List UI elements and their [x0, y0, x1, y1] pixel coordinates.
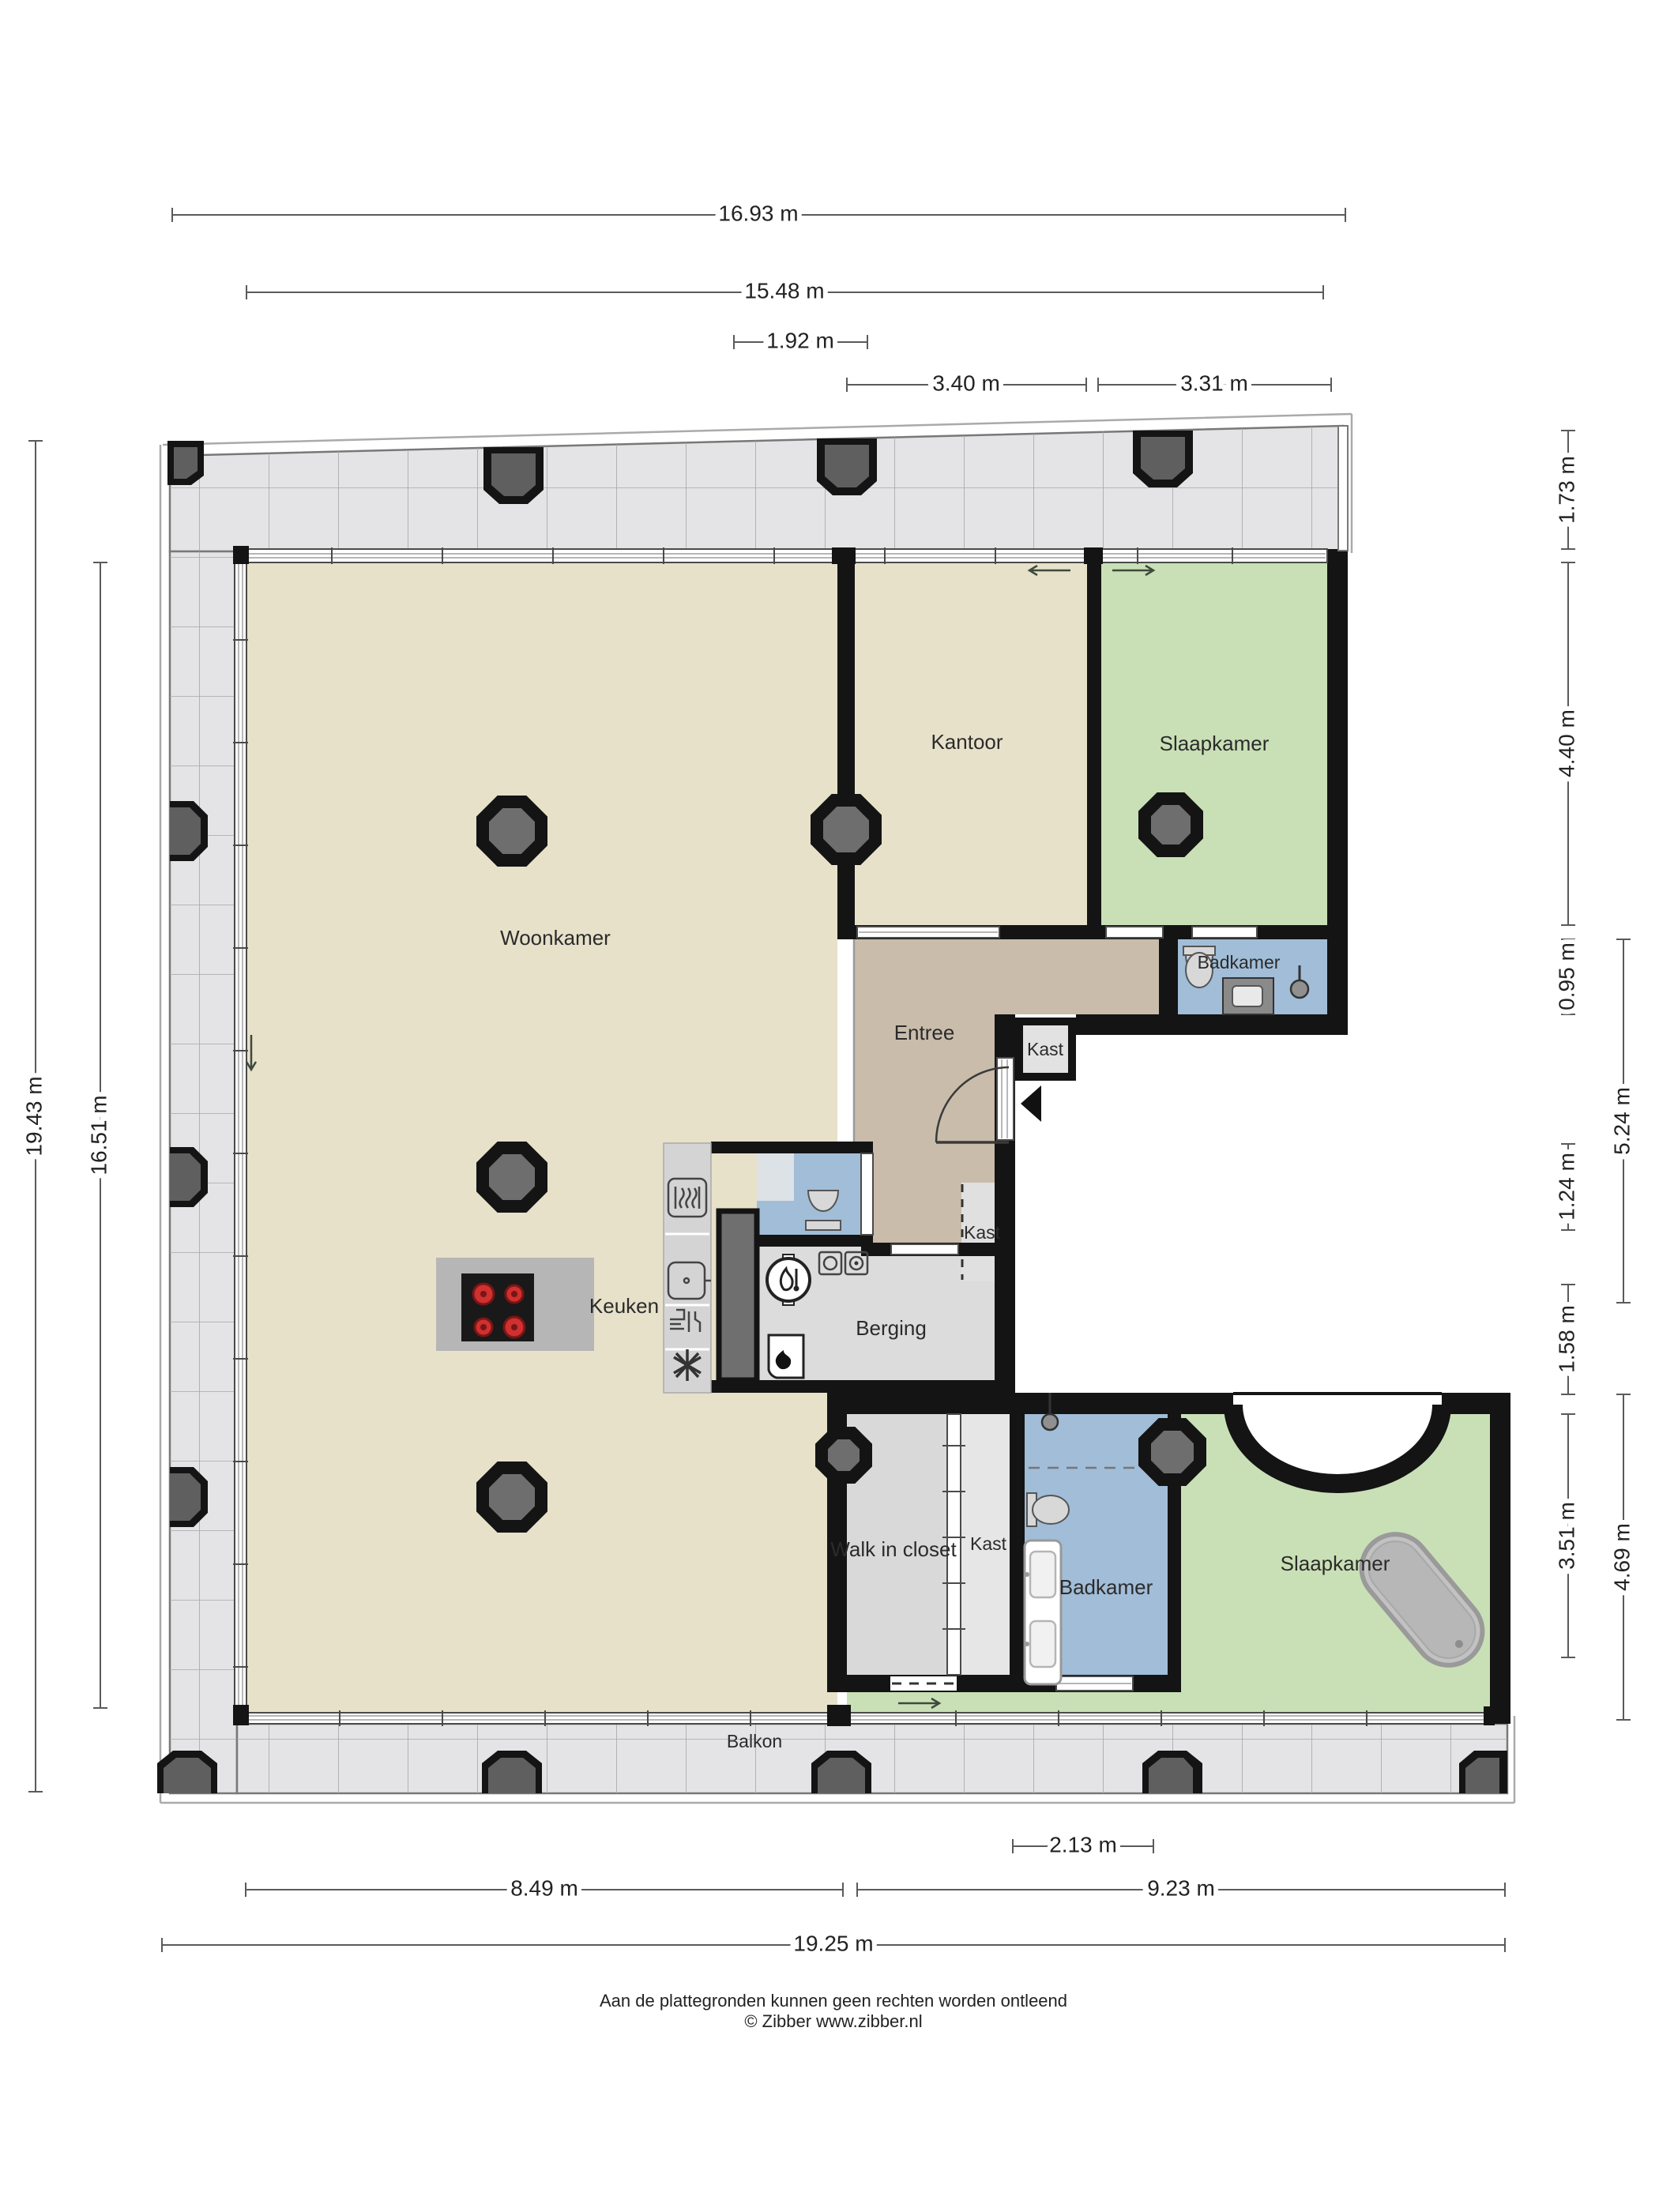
- dim-bottom-3: 19.25 m: [793, 1931, 873, 1955]
- dim-bottom-0: 2.13 m: [1049, 1832, 1117, 1856]
- window-band-top: [237, 549, 1327, 562]
- badkamer-top-window: [1192, 927, 1257, 938]
- toilet-bottom-icon: [1027, 1493, 1069, 1526]
- label-keuken: Keuken: [589, 1294, 659, 1318]
- toilet-window: [861, 1153, 873, 1235]
- wall-toilet-top: [711, 1142, 873, 1153]
- column-octagon: [817, 800, 875, 859]
- dim-right-7: 4.69 m: [1609, 1523, 1634, 1591]
- double-basin-icon: [1025, 1540, 1061, 1684]
- dim-left-1: 16.51 m: [86, 1095, 111, 1175]
- dim-right-1: 4.40 m: [1554, 709, 1578, 777]
- column-octagon: [483, 802, 541, 860]
- footer: Aan de plattegronden kunnen geen rechten…: [600, 1991, 1067, 2031]
- label-berging: Berging: [856, 1316, 927, 1340]
- label-kast-b: Kast: [964, 1222, 1001, 1243]
- berging-window: [891, 1244, 958, 1255]
- vanity-sink-icon: [1223, 978, 1273, 1014]
- label-balkon: Balkon: [727, 1731, 782, 1751]
- dim-left-0: 19.43 m: [21, 1076, 46, 1156]
- dim-right-2: 0.95 m: [1554, 942, 1578, 1010]
- wall-kantoor-slaapkamer: [1087, 562, 1101, 939]
- dim-right-5: 1.58 m: [1554, 1305, 1578, 1373]
- label-kantoor: Kantoor: [931, 730, 1003, 754]
- wall-bedroom-right: [1490, 1393, 1510, 1724]
- dim-top-0: 16.93 m: [718, 201, 798, 225]
- slaapkamer-top-door: [1106, 927, 1163, 938]
- dim-top-2: 1.92 m: [766, 328, 834, 352]
- wall-berging-bottom: [711, 1380, 1015, 1393]
- wall-badkamer-top-left: [1159, 939, 1178, 1014]
- column-octagon: [1145, 1424, 1200, 1480]
- label-woonkamer: Woonkamer: [500, 926, 611, 950]
- wall-top-block-bottom: [1076, 1014, 1348, 1035]
- footer-copyright: © Zibber www.zibber.nl: [744, 2011, 922, 2031]
- column-octagon: [1145, 799, 1197, 851]
- wall-right-top-block: [1327, 549, 1348, 1035]
- dim-top-1: 15.48 m: [744, 278, 824, 303]
- label-badkamer-bottom: Badkamer: [1059, 1575, 1153, 1599]
- wall-toilet-bottom: [743, 1235, 873, 1247]
- label-badkamer-top: Badkamer: [1198, 952, 1281, 972]
- label-kast-c: Kast: [970, 1533, 1007, 1554]
- dim-right-0: 1.73 m: [1554, 456, 1578, 524]
- wall-woonkamer-kantoor: [837, 562, 855, 939]
- entry-arrow-marker: [1021, 1085, 1041, 1122]
- boiler-icon: [769, 1335, 803, 1378]
- footer-disclaimer: Aan de plattegronden kunnen geen rechten…: [600, 1991, 1067, 2011]
- dim-right-4: 1.24 m: [1554, 1153, 1578, 1221]
- dim-bottom-2: 9.23 m: [1147, 1875, 1215, 1900]
- dim-top-4: 3.31 m: [1180, 371, 1248, 395]
- dim-top-3: 3.40 m: [932, 371, 1000, 395]
- column-octagon: [483, 1148, 541, 1206]
- entree-hall-floor: [995, 939, 1159, 1014]
- woonkamer-floor: [246, 562, 837, 1713]
- duct-shaft: [719, 1211, 757, 1380]
- column-octagon: [822, 1433, 866, 1477]
- label-slaapkamer-bottom: Slaapkamer: [1281, 1552, 1390, 1575]
- dim-right-3: 5.24 m: [1609, 1087, 1634, 1155]
- balcony-right-rail: [1338, 426, 1348, 551]
- dim-right-6: 3.51 m: [1554, 1502, 1578, 1570]
- label-walk-in-closet: Walk in closet: [830, 1537, 957, 1561]
- label-entree: Entree: [894, 1021, 955, 1044]
- window-band-left: [235, 562, 246, 1713]
- floorplan-canvas: Woonkamer Kantoor Slaapkamer Badkamer Ka…: [0, 0, 1659, 2212]
- dim-bottom-1: 8.49 m: [510, 1875, 578, 1900]
- label-slaapkamer-top: Slaapkamer: [1160, 732, 1270, 755]
- column-octagon: [483, 1468, 541, 1526]
- toilet-shower-tray: [757, 1153, 794, 1201]
- label-kast-a: Kast: [1027, 1039, 1064, 1059]
- window-band-bottom: [237, 1713, 1493, 1724]
- wall-kastc-badkamer: [1010, 1414, 1025, 1675]
- entry-door-frame: [997, 1058, 1014, 1140]
